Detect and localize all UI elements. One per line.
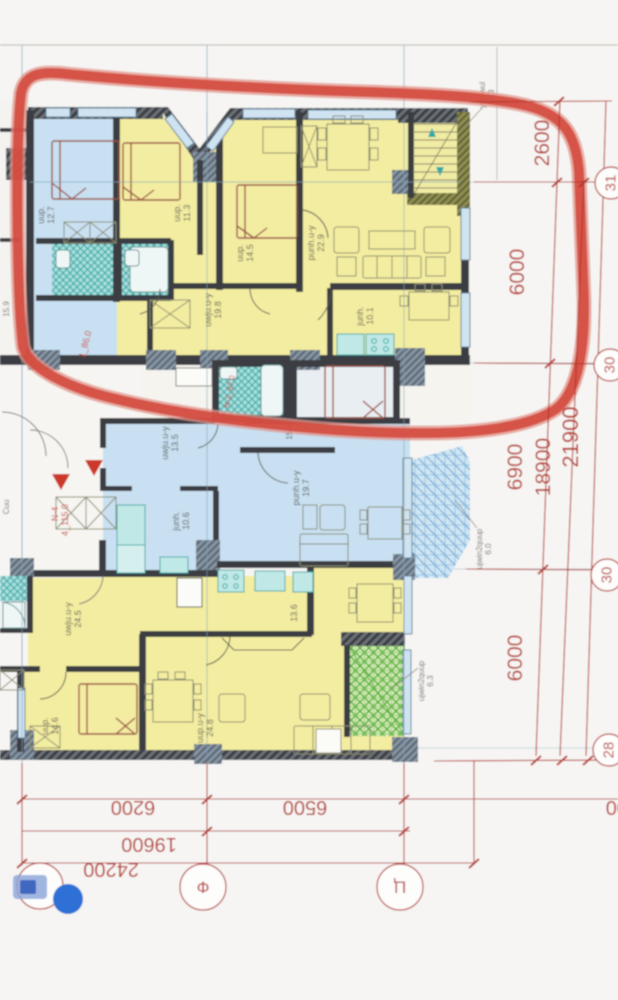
svg-text:uup.14.5: uup.14.5 <box>235 244 255 262</box>
svg-text:28: 28 <box>601 742 618 759</box>
svg-text:Ц: Ц <box>393 878 406 897</box>
svg-text:18900: 18900 <box>532 438 555 496</box>
svg-text:Ф: Ф <box>197 878 210 897</box>
svg-text:6900: 6900 <box>504 444 527 491</box>
svg-text:6500: 6500 <box>283 796 328 818</box>
svg-text:6200: 6200 <box>111 796 156 818</box>
svg-text:uup.11.3: uup.11.3 <box>172 204 192 222</box>
svg-text:uup.14.6: uup.14.6 <box>40 717 60 735</box>
svg-text:6000: 6000 <box>506 249 529 296</box>
svg-text:N-4: N-4 <box>50 507 60 522</box>
svg-text:30: 30 <box>599 567 616 584</box>
svg-text:13.6: 13.6 <box>289 604 299 622</box>
svg-text:4_115.0: 4_115.0 <box>60 504 70 536</box>
svg-text:6000: 6000 <box>504 635 527 682</box>
svg-text:junh.10.6: junh.10.6 <box>171 511 191 532</box>
svg-text:uup.12.7: uup.12.7 <box>36 206 56 224</box>
svg-text:2600: 2600 <box>531 120 554 167</box>
svg-text:6500: 6500 <box>606 796 618 818</box>
svg-text:15.9: 15.9 <box>2 301 11 317</box>
svg-text:21900: 21900 <box>558 406 583 467</box>
svg-text:24200: 24200 <box>83 858 139 880</box>
svg-text:31: 31 <box>603 175 618 192</box>
svg-text:junh.10.1: junh.10.1 <box>355 306 375 327</box>
svg-text:19600: 19600 <box>121 833 177 855</box>
svg-text:Cuu: Cuu <box>2 500 11 515</box>
svg-text:30: 30 <box>602 357 618 374</box>
